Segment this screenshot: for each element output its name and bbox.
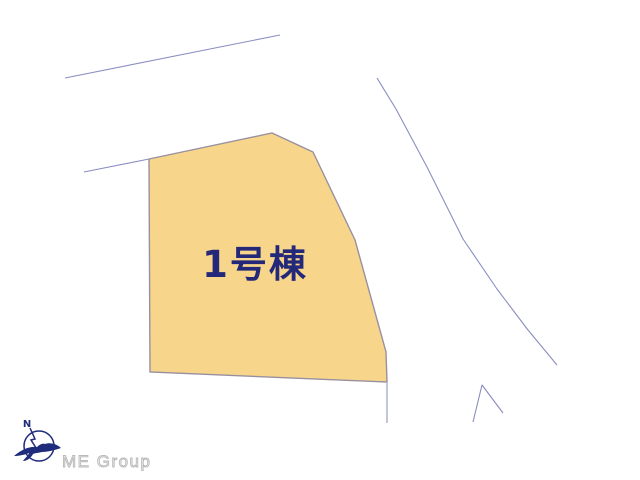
site-plan-drawing: 1号棟 N ME Group <box>0 0 640 480</box>
swallow-bird-icon <box>14 443 61 461</box>
road-curve-right <box>377 78 557 365</box>
compass-north-letter: N <box>23 419 31 430</box>
boundary-peak-mark <box>473 385 503 422</box>
company-logo: N <box>14 419 61 461</box>
road-line-top <box>65 35 280 78</box>
company-name: ME Group <box>62 452 151 471</box>
site-plan-canvas: 1号棟 N ME Group <box>0 0 640 480</box>
road-line-left <box>84 159 149 172</box>
parcel-label: 1号棟 <box>202 243 308 286</box>
